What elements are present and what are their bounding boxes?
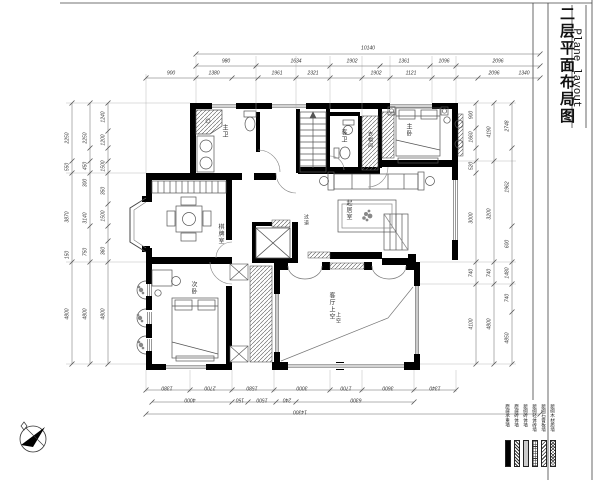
dim-label: 1200	[102, 134, 107, 145]
dim-label: 1240	[102, 111, 107, 122]
dim-label: 1500	[256, 397, 267, 402]
sheet-title-en-text: Plane layout	[570, 28, 582, 107]
dim-label: 1361	[398, 60, 409, 65]
room-label-master-bedroom: 主卧	[405, 123, 411, 137]
sheet-title-en: Plane layout	[569, 8, 583, 128]
wall-legend: 原建承重墙 原建砖体墙 新砌砖体墙 新砌轻体砖墙 新砌石膏板墙 新砌木材质墙	[505, 404, 556, 467]
dim-label: 3000	[470, 212, 475, 223]
room-label-game-room: 棋牌室	[217, 224, 223, 245]
dim-label: 600	[506, 240, 511, 248]
room-label-master-bath: 主卫	[221, 124, 227, 138]
legend-label: 新砌石膏板墙	[542, 404, 547, 438]
dim-label: 4190	[488, 126, 493, 137]
room-label-lounge: 起居室	[345, 200, 351, 221]
dim-label: 2250	[84, 132, 89, 143]
dim-label: 150	[66, 251, 71, 259]
legend-item: 原建砖体墙	[514, 404, 520, 467]
north-arrow-icon	[20, 422, 46, 452]
dim-label: 1380	[208, 72, 219, 77]
dim-label: 1580	[246, 385, 257, 390]
dim-label: 750	[84, 248, 89, 256]
dim-label: 150	[236, 397, 244, 402]
master-bath-fixtures	[196, 110, 256, 172]
room-label-void: 客厅上空	[328, 292, 334, 320]
dim-label: 740	[488, 269, 493, 277]
dim-label: 1500	[102, 160, 107, 171]
dim-label: 10140	[361, 47, 375, 52]
dim-label: 1902	[370, 72, 381, 77]
legend-swatch-diagonal-hatch	[514, 440, 520, 467]
dim-label: 4800	[84, 308, 89, 319]
legend-item: 新砌砖体墙	[523, 404, 529, 467]
legend-item: 新砌木材质墙	[550, 404, 556, 467]
dim-label: 3870	[66, 211, 71, 222]
dim-label: 3600	[382, 385, 393, 390]
room-label-cloakroom: 衣帽间	[367, 131, 373, 149]
dim-label: 4800	[102, 308, 107, 319]
dim-label: 4000	[184, 397, 195, 402]
dim-label: 1340	[518, 72, 529, 77]
dim-label: 300	[84, 179, 89, 187]
dim-label: 450	[84, 162, 89, 170]
room-label-void-note: 上空	[335, 312, 341, 324]
dim-label: 2096	[488, 72, 499, 77]
legend-item: 新砌石膏板墙	[541, 404, 547, 467]
dim-label: 3000	[296, 385, 307, 390]
dim-label: 520	[470, 162, 475, 170]
dim-label: 2250	[66, 132, 71, 143]
room-label-corridor: 过道	[303, 214, 309, 226]
dim-label: 900	[470, 111, 475, 119]
dim-label: 1500	[102, 210, 107, 221]
dim-label: 1634	[290, 60, 301, 65]
dim-label: 350	[102, 187, 107, 195]
dim-label: 4800	[488, 318, 493, 329]
lounge-furniture	[320, 172, 435, 232]
dim-label: 2321	[307, 72, 318, 77]
dim-label: 3200	[488, 208, 493, 219]
dim-label: 4100	[470, 318, 475, 329]
dim-label: 900	[167, 72, 175, 77]
elevator	[256, 228, 290, 258]
legend-swatch-solid-black	[505, 440, 511, 467]
master-bedroom-furniture	[388, 107, 463, 163]
game-room-furniture	[152, 181, 226, 241]
dim-label: 740	[506, 294, 511, 302]
dim-label: 14300	[293, 409, 307, 414]
legend-item: 新砌轻体砖墙	[532, 404, 538, 467]
room-label-bedroom: 次卧	[190, 281, 196, 295]
dim-label: 1962	[506, 181, 511, 192]
room-label-guest-bath: 客卫	[340, 129, 346, 143]
legend-swatch-dense-dots	[523, 440, 529, 467]
dim-label: 1480	[506, 267, 511, 278]
dim-label: 3140	[84, 212, 89, 223]
dim-label: 550	[66, 163, 71, 171]
legend-item: 原建承重墙	[505, 404, 511, 467]
dim-label: 240	[283, 397, 291, 402]
dim-label: 1660	[470, 131, 475, 142]
staircase-up	[300, 112, 326, 172]
dim-label: 1121	[406, 72, 417, 77]
dim-label: 4800	[66, 308, 71, 319]
void-marks	[281, 266, 413, 361]
legend-swatch-light-diagonal	[541, 440, 547, 467]
dim-label: 2700	[204, 385, 215, 390]
dim-label: 980	[222, 60, 230, 65]
dim-label: 360	[102, 247, 107, 255]
legend-swatch-grid	[532, 440, 538, 467]
dim-label: 740	[470, 269, 475, 277]
dim-label: 6300	[350, 397, 361, 402]
dim-label: 2748	[506, 120, 511, 131]
dim-label: 1096	[438, 60, 449, 65]
dim-label: 1961	[271, 72, 282, 77]
legend-label: 新砌砖体墙	[524, 404, 529, 438]
bay-window	[130, 198, 146, 252]
dim-label: 1340	[429, 385, 440, 390]
legend-swatch-crosshatch	[550, 440, 556, 467]
dim-label: 2096	[492, 60, 503, 65]
legend-label: 新砌木材质墙	[551, 404, 556, 438]
dim-label: 1700	[340, 385, 351, 390]
dim-label: 1902	[346, 60, 357, 65]
legend-label: 原建承重墙	[506, 404, 511, 438]
legend-label: 原建砖体墙	[515, 404, 520, 438]
dim-label: 1380	[161, 385, 172, 390]
drawing-sheet: 10140 980 1634 1902 1361 1096 2096 900 1…	[0, 0, 600, 480]
legend-label: 新砌轻体砖墙	[533, 404, 538, 438]
dim-label: 4850	[506, 332, 511, 343]
